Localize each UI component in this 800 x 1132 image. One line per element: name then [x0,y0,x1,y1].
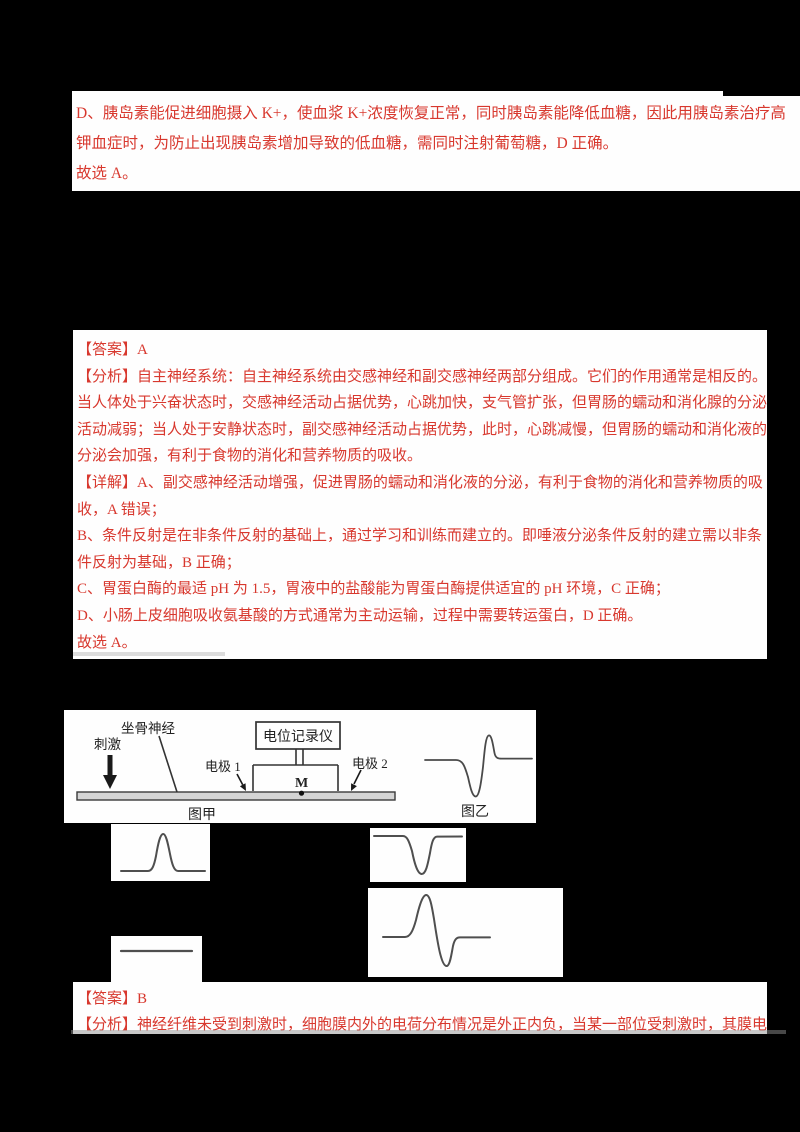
answer-block-insulin: D、胰岛素能促进细胞摄入 K+，使血浆 K+浓度恢复正常，同时胰岛素能降低血糖，… [72,91,800,191]
analysis-line: 【分析】神经纤维未受到刺激时，细胞膜内外的电荷分布情况是外正内负，当某一部位受刺… [77,1012,767,1038]
answer-block-autonomic: 【答案】A 【分析】自主神经系统：自主神经系统由交感神经和副交感神经两部分组成。… [73,330,767,659]
detail-line: B、条件反射是在非条件反射的基础上，通过学习和训练而建立的。即唾液分泌条件反射的… [77,523,767,550]
explanation-line: 钾血症时，为防止出现胰岛素增加导致的低血糖，需同时注射葡萄糖，D 正确。 [76,129,800,159]
detail-line: 【详解】A、副交感神经活动增强，促进胃肠的蠕动和消化液的分泌，有利于食物的消化和… [77,470,767,497]
electrode1-arrow-line [237,774,243,785]
figure-b-caption: 图乙 [461,804,489,820]
answer-line: 【答案】B [77,986,767,1012]
stimulus-arrow-head [103,775,117,789]
recorder-label: 电位记录仪 [263,729,333,745]
figure-a-caption: 图甲 [188,808,216,823]
analysis-line: 分泌会加强，有利于食物的消化和营养物质的吸收。 [77,443,767,470]
answer-line: 【答案】A [77,337,767,364]
answer-block-nerve-fiber: 【答案】B 【分析】神经纤维未受到刺激时，细胞膜内外的电荷分布情况是外正内负，当… [73,982,767,1034]
upward-peak-trace [121,834,205,871]
detail-line: 件反射为基础，B 正确； [77,550,767,577]
waveform-option-downward-trough [370,828,466,882]
electrode1-label: 电极 1 [205,759,241,774]
electrode2-arrow-head [351,783,357,791]
detail-line: 收，A 错误； [77,497,767,524]
waveform-option-flat-line [111,936,202,986]
corner-notch [723,91,800,96]
stimulus-arrow-shaft [108,755,113,776]
chosen-answer-line: 故选 A。 [76,159,800,189]
detail-line: C、胃蛋白酶的最适 pH 为 1.5，胃液中的盐酸能为胃蛋白酶提供适宜的 pH … [77,576,767,603]
analysis-line: 【分析】自主神经系统：自主神经系统由交感神经和副交感神经两部分组成。它们的作用通… [77,364,767,391]
nerve-bar [77,792,395,800]
waveform-option-biphasic [368,888,563,977]
figure-panel: 刺激 坐骨神经 电位记录仪 电极 1 电极 2 M 图甲 [64,710,536,823]
block-bottom-shadow [73,652,225,656]
detail-line: D、小肠上皮细胞吸收氨基酸的方式通常为主动运输，过程中需要转运蛋白，D 正确。 [77,603,767,630]
waveform-option-upward-peak [111,824,210,881]
sciatic-nerve-label: 坐骨神经 [121,721,175,736]
explanation-line: D、胰岛素能促进细胞摄入 K+，使血浆 K+浓度恢复正常，同时胰岛素能降低血糖，… [76,99,800,129]
analysis-line: 当人体处于兴奋状态时，交感神经活动占据优势，心跳加快，支气管扩张，但胃肠的蠕动和… [77,390,767,417]
block-bottom-shadow [71,1030,786,1034]
figure-b-waveform [425,735,532,796]
analysis-line: 活动减弱；当人处于安静状态时，副交感神经活动占据优势，此时，心跳减慢，但胃肠的蠕… [77,417,767,444]
electrode2-label: 电极 2 [352,756,388,771]
point-m-dot [299,791,304,796]
nerve-experiment-diagram: 刺激 坐骨神经 电位记录仪 电极 1 电极 2 M 图甲 [64,710,536,823]
downward-trough-trace [374,836,462,874]
biphasic-trace [383,895,490,966]
electrode2-arrow-line [354,770,361,784]
document-page: D、胰岛素能促进细胞摄入 K+，使血浆 K+浓度恢复正常，同时胰岛素能降低血糖，… [0,0,800,1132]
point-m-label: M [295,776,308,791]
nerve-pointer-line [159,736,177,792]
stimulus-label: 刺激 [94,737,121,752]
